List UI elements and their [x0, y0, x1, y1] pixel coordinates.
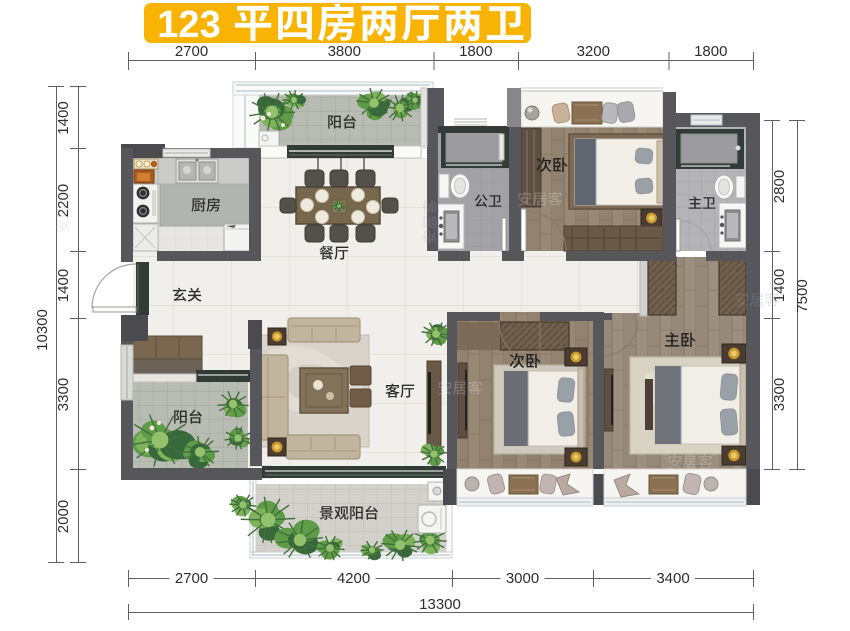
svg-text:4200: 4200 — [337, 570, 370, 587]
svg-text:1400: 1400 — [55, 269, 72, 302]
svg-text:2700: 2700 — [175, 43, 208, 60]
svg-text:7500: 7500 — [794, 279, 811, 312]
svg-text:13300: 13300 — [419, 596, 461, 613]
svg-text:3000: 3000 — [506, 570, 539, 587]
svg-text:2800: 2800 — [771, 170, 788, 203]
svg-text:3300: 3300 — [55, 378, 72, 411]
svg-text:2000: 2000 — [55, 500, 72, 533]
svg-text:10300: 10300 — [34, 309, 51, 351]
svg-text:2700: 2700 — [175, 570, 208, 587]
svg-text:123: 123 — [157, 4, 220, 46]
svg-text:1800: 1800 — [459, 43, 492, 60]
svg-text:1400: 1400 — [55, 101, 72, 134]
svg-text:3800: 3800 — [328, 43, 361, 60]
svg-text:1800: 1800 — [694, 43, 727, 60]
svg-text:3300: 3300 — [771, 378, 788, 411]
svg-text:3200: 3200 — [577, 43, 610, 60]
svg-text:3400: 3400 — [656, 570, 689, 587]
